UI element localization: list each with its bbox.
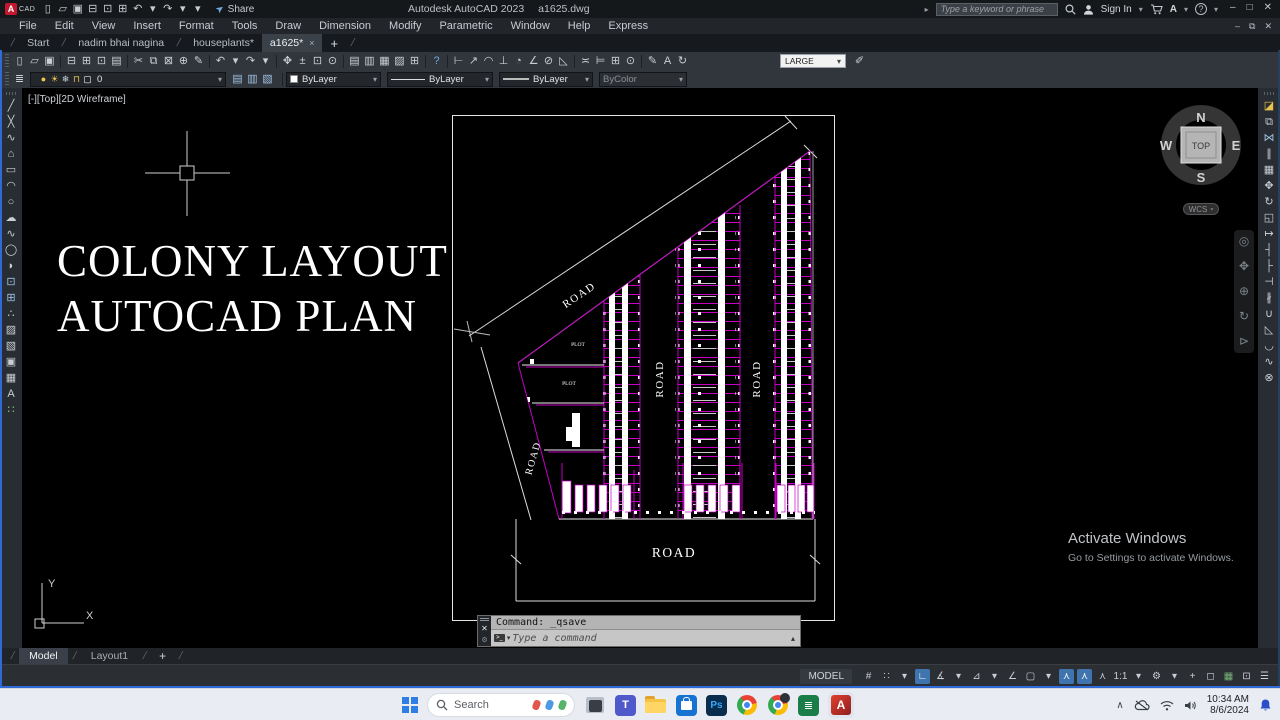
autodesk-app-store-button[interactable]: A bbox=[1170, 4, 1177, 15]
toolbar-separator bbox=[60, 55, 61, 68]
color-swatch bbox=[290, 75, 298, 83]
stretch-icon[interactable]: ↦ bbox=[1262, 227, 1277, 242]
rotate-icon[interactable]: ↻ bbox=[1262, 195, 1277, 210]
polar-tracking-icon[interactable]: ∡ bbox=[933, 669, 948, 684]
break-at-point-icon[interactable]: ⊣ bbox=[1262, 275, 1277, 290]
zoom-realtime-icon[interactable]: ± bbox=[295, 54, 310, 69]
dim-text-edit-icon[interactable]: A bbox=[660, 54, 675, 69]
revision-cloud-icon[interactable]: ☁ bbox=[4, 211, 19, 226]
road-label-v1: ROAD bbox=[654, 360, 666, 397]
ucs-icon: Y X bbox=[26, 575, 96, 637]
command-input[interactable] bbox=[512, 633, 789, 644]
scale-icon[interactable]: ◱ bbox=[1262, 211, 1277, 226]
plot-label-3: PLOT bbox=[566, 429, 580, 435]
share-button[interactable]: ➤ Share bbox=[216, 4, 254, 15]
scale-menu-icon[interactable]: ▾ bbox=[1131, 669, 1146, 684]
autocad-logo[interactable]: A CAD bbox=[5, 3, 35, 15]
iso-menu-icon[interactable]: ▾ bbox=[987, 669, 1002, 684]
chevron-down-icon: ▾ bbox=[1210, 206, 1213, 213]
undo-icon[interactable]: ↶ bbox=[213, 54, 228, 69]
navigation-bar: ◎✥⊕↻⊳ bbox=[1234, 230, 1254, 353]
chevron-down-icon: ▾ bbox=[679, 75, 683, 84]
wcs-label: WCS bbox=[1189, 205, 1208, 214]
menu-help[interactable]: Help bbox=[559, 18, 600, 34]
print-icon[interactable]: ⊡ bbox=[94, 54, 109, 69]
autocad-window: A CAD ▯▱▣⊟⊡⊞↶▾↷▾▾ ➤ Share Autodesk AutoC… bbox=[0, 0, 1280, 720]
road-label-top: ROAD bbox=[561, 280, 599, 311]
dim-continue-icon[interactable]: ≍ bbox=[578, 54, 593, 69]
ucs-x-label: X bbox=[86, 610, 94, 622]
dim-angular-icon[interactable]: ∠ bbox=[526, 54, 541, 69]
cut-clip-icon[interactable]: ✂ bbox=[131, 54, 146, 69]
tolerance-icon[interactable]: ⊞ bbox=[608, 54, 623, 69]
polygon-icon[interactable]: ⌂ bbox=[4, 147, 19, 162]
help-icon[interactable]: ? bbox=[1195, 3, 1207, 15]
layout-separator: / bbox=[66, 650, 82, 662]
redo-icon[interactable]: ↷ bbox=[243, 54, 258, 69]
command-expand-icon[interactable]: ▴ bbox=[791, 634, 795, 643]
tab-separator: / bbox=[344, 37, 360, 49]
undo-menu-icon[interactable]: ▾ bbox=[228, 54, 243, 69]
command-prompt-icon: >_ bbox=[494, 634, 505, 642]
search-highlight-icon bbox=[532, 699, 542, 711]
onedrive-icon[interactable] bbox=[1134, 700, 1150, 711]
layer-tools: ▤▥▧ bbox=[230, 72, 275, 87]
toolbar-grip[interactable] bbox=[5, 72, 9, 86]
table-icon[interactable]: ▦ bbox=[4, 371, 19, 386]
system-tray: ∧ 10:34 AM 8/6/2024 bbox=[1116, 689, 1272, 720]
modify-toolbar: ◪⧉⋈∥▦✥↻◱↦┤├⊣∦∪◺◡∿⊗ bbox=[1258, 88, 1280, 648]
dim-baseline-icon[interactable]: ⊨ bbox=[593, 54, 608, 69]
window-controls: – □ ✕ bbox=[1230, 2, 1272, 13]
document-window-controls: – ⧉ ✕ bbox=[1235, 18, 1272, 34]
print-icon[interactable]: ⊡ bbox=[100, 2, 115, 17]
maximize-button[interactable]: □ bbox=[1247, 2, 1253, 13]
multiline-text-icon[interactable]: A bbox=[4, 387, 19, 402]
search-highlight-icon bbox=[558, 699, 568, 711]
object-snap-icon[interactable]: ▢ bbox=[1023, 669, 1038, 684]
toolbar-separator bbox=[343, 55, 344, 68]
standard-toolbar: ▯▱▣⊟⊞⊡▤✂⧉⊠⊕✎↶▾↷▾✥±⊡⊙▤▥▦▨⊞?⊢↗◠⊥◔∠⊘◺≍⊨⊞⊙✎A… bbox=[0, 52, 1280, 70]
wifi-icon[interactable] bbox=[1160, 700, 1174, 711]
plot-style-dropdown: ByColor ▾ bbox=[599, 72, 687, 87]
document-title: a1625.dwg bbox=[538, 3, 589, 15]
doc-restore-button[interactable]: ⧉ bbox=[1249, 21, 1255, 32]
viewcube-top-face[interactable]: TOP bbox=[1192, 141, 1210, 151]
model-tab[interactable]: Model bbox=[19, 648, 68, 664]
cad-label: CAD bbox=[19, 6, 35, 13]
plot-label-2: PLOT bbox=[562, 381, 576, 387]
annotation-monitor-icon[interactable]: + bbox=[1185, 669, 1200, 684]
ucs-y-label: Y bbox=[48, 578, 56, 590]
new-layout-button[interactable]: + bbox=[151, 649, 174, 663]
help-menu-icon[interactable]: ▾ bbox=[1214, 5, 1218, 14]
toolbar-separator bbox=[127, 55, 128, 68]
new-tab-button[interactable]: + bbox=[322, 36, 346, 51]
current-layer-name: 0 bbox=[97, 74, 214, 85]
plot-label-1: PLOT bbox=[571, 342, 585, 348]
polyline-icon[interactable]: ∿ bbox=[4, 131, 19, 146]
linetype-dropdown[interactable]: ByLayer ▾ bbox=[387, 72, 493, 87]
status-customize-icon[interactable]: ☰ bbox=[1257, 669, 1272, 684]
join-icon[interactable]: ∪ bbox=[1262, 307, 1277, 322]
open-file-icon[interactable]: ▱ bbox=[27, 54, 42, 69]
dim-update-icon[interactable]: ↻ bbox=[675, 54, 690, 69]
qat-customize-icon[interactable]: ▾ bbox=[190, 2, 205, 17]
dim-style-dropdown[interactable]: LARGE ▾ bbox=[780, 54, 846, 68]
trim-icon[interactable]: ┤ bbox=[1262, 243, 1277, 258]
viewcube-south[interactable]: S bbox=[1197, 170, 1206, 185]
plot-icon[interactable]: ⊟ bbox=[85, 2, 100, 17]
microsoft-store-icon[interactable] bbox=[676, 695, 697, 716]
menu-parametric[interactable]: Parametric bbox=[430, 18, 501, 34]
photoshop-icon[interactable]: Ps bbox=[706, 695, 727, 716]
doc-close-button[interactable]: ✕ bbox=[1264, 21, 1272, 32]
menu-view[interactable]: View bbox=[83, 18, 125, 34]
store-menu-icon[interactable]: ▾ bbox=[1184, 5, 1188, 14]
headline-line1: COLONY LAYOUT bbox=[57, 234, 448, 289]
array-icon[interactable]: ▦ bbox=[1262, 163, 1277, 178]
volume-icon[interactable] bbox=[1184, 700, 1197, 711]
gradient-icon[interactable]: ▧ bbox=[4, 339, 19, 354]
standard-toolbar-icons: ▯▱▣⊟⊞⊡▤✂⧉⊠⊕✎↶▾↷▾✥±⊡⊙▤▥▦▨⊞?⊢↗◠⊥◔∠⊘◺≍⊨⊞⊙✎A… bbox=[12, 54, 690, 69]
sign-in-button[interactable]: Sign In bbox=[1101, 4, 1132, 15]
tab-houseplants[interactable]: houseplants* bbox=[185, 34, 262, 52]
wcs-dropdown[interactable]: WCS ▾ bbox=[1183, 203, 1219, 215]
snap-mode-icon[interactable]: ∷ bbox=[879, 669, 894, 684]
object-snap-tracking-icon[interactable]: ∠ bbox=[1005, 669, 1020, 684]
plot-style-value: ByColor bbox=[603, 74, 675, 85]
chrome-profile-icon[interactable] bbox=[767, 694, 789, 716]
layer-isolate-icon[interactable]: ▦ bbox=[377, 54, 392, 69]
search-icon[interactable] bbox=[1065, 4, 1076, 15]
osnap-menu-icon[interactable]: ▾ bbox=[1041, 669, 1056, 684]
viewcube-north[interactable]: N bbox=[1196, 110, 1205, 125]
match-properties-icon[interactable]: ✎ bbox=[191, 54, 206, 69]
ellipse-arc-icon[interactable]: ◗ bbox=[4, 259, 19, 274]
cart-icon[interactable] bbox=[1150, 4, 1163, 15]
command-window: ✕ ⚙ Command: _qsave >_ ▾ ▴ bbox=[477, 615, 801, 647]
redo-menu-icon[interactable]: ▾ bbox=[175, 2, 190, 17]
layer-dropdown[interactable]: ●☀❄⊓▢ 0 ▾ bbox=[30, 72, 226, 87]
redo-menu-icon[interactable]: ▾ bbox=[258, 54, 273, 69]
color-value: ByLayer bbox=[302, 74, 369, 85]
menu-draw[interactable]: Draw bbox=[266, 18, 310, 34]
title-bar: A CAD ▯▱▣⊟⊡⊞↶▾↷▾▾ ➤ Share Autodesk AutoC… bbox=[0, 0, 1280, 18]
explode-icon[interactable]: ⊗ bbox=[1262, 371, 1277, 386]
window-border-left bbox=[0, 50, 2, 688]
share-label: Share bbox=[228, 4, 255, 15]
clean-screen-icon[interactable]: ⊡ bbox=[1239, 669, 1254, 684]
chevron-down-icon: ▾ bbox=[373, 75, 377, 84]
open-file-icon[interactable]: ▱ bbox=[55, 2, 70, 17]
layout-separator: / bbox=[173, 650, 189, 662]
teams-icon[interactable]: T bbox=[615, 695, 636, 716]
search-label: Search bbox=[454, 699, 527, 711]
fillet-icon[interactable]: ◡ bbox=[1262, 339, 1277, 354]
tab-close-icon[interactable]: × bbox=[309, 34, 314, 52]
undo-menu-icon[interactable]: ▾ bbox=[145, 2, 160, 17]
command-main: Command: _qsave >_ ▾ ▴ bbox=[491, 616, 800, 646]
road-label-left: ROAD bbox=[524, 440, 544, 476]
ortho-mode-icon[interactable]: ∟ bbox=[915, 669, 930, 684]
crosshair-cursor bbox=[145, 131, 230, 216]
status-toggles: #∷▾∟∡▾⊿▾∠▢▾⋏⋏⋏1:1▾⚙▾+◻▦⊡☰ bbox=[861, 669, 1272, 684]
command-history-line: Command: _qsave bbox=[491, 616, 800, 630]
pan-hand-icon[interactable]: ✥ bbox=[1237, 259, 1252, 274]
taskbar-search[interactable]: Search bbox=[427, 693, 575, 717]
zoom-previous-icon[interactable]: ⊙ bbox=[325, 54, 340, 69]
hatch-icon[interactable]: ▨ bbox=[4, 323, 19, 338]
minimize-button[interactable]: – bbox=[1230, 2, 1236, 13]
file-tab-bar: / Start / nadim bhai nagina / houseplant… bbox=[0, 34, 1280, 52]
extend-icon[interactable]: ├ bbox=[1262, 259, 1277, 274]
menu-window[interactable]: Window bbox=[502, 18, 559, 34]
title-right-cluster: ▸ Sign In ▾ A ▾ ? ▾ bbox=[925, 2, 1218, 16]
pan-icon[interactable]: ✥ bbox=[280, 54, 295, 69]
colony-plan-drawing: ROAD ROAD ROAD ROAD ROAD PLOT PLOT PLOT bbox=[452, 115, 835, 622]
arc-icon[interactable]: ◠ bbox=[4, 179, 19, 194]
dim-arc-length-icon[interactable]: ◠ bbox=[481, 54, 496, 69]
drawing-viewport[interactable]: ╱╳∿⌂▭◠○☁∿◯◗⊡⊞∴▨▧▣▦A∷ ◪⧉⋈∥▦✥↻◱↦┤├⊣∦∪◺◡∿⊗ … bbox=[0, 88, 1280, 648]
circle-icon[interactable]: ○ bbox=[4, 195, 19, 210]
grid-display-icon[interactable]: # bbox=[861, 669, 876, 684]
copy-base-point-icon[interactable]: ⊕ bbox=[176, 54, 191, 69]
polar-menu-icon[interactable]: ▾ bbox=[951, 669, 966, 684]
windows-taskbar: Search T Ps ≣ A ∧ bbox=[0, 688, 1280, 720]
tab-nadim-bhai-nagina[interactable]: nadim bhai nagina bbox=[70, 34, 172, 52]
dim-linear-icon[interactable]: ⊢ bbox=[451, 54, 466, 69]
layer-properties-manager-icon[interactable]: ≣ bbox=[12, 72, 27, 87]
navigation-wheel-icon[interactable]: ◎ bbox=[1237, 234, 1252, 249]
redo-icon[interactable]: ↷ bbox=[160, 2, 175, 17]
start-button[interactable] bbox=[402, 697, 418, 713]
snap-menu-icon[interactable]: ▾ bbox=[897, 669, 912, 684]
annotation-autoscale-icon[interactable]: ⋏ bbox=[1077, 669, 1092, 684]
mirror-icon[interactable]: ⋈ bbox=[1262, 131, 1277, 146]
save-file-icon[interactable]: ▣ bbox=[42, 54, 57, 69]
viewcube-west[interactable]: W bbox=[1160, 138, 1173, 153]
isometric-drafting-icon[interactable]: ⊿ bbox=[969, 669, 984, 684]
doc-minimize-button[interactable]: – bbox=[1235, 21, 1240, 31]
dim-edit-icon[interactable]: ✎ bbox=[645, 54, 660, 69]
zoom-tool-icon[interactable]: ⊕ bbox=[1237, 284, 1252, 299]
keyword-search-input[interactable] bbox=[936, 3, 1058, 16]
notification-bell-icon[interactable] bbox=[1259, 698, 1272, 712]
layer-lock-icon[interactable]: ⊓ bbox=[71, 72, 82, 87]
menu-insert[interactable]: Insert bbox=[124, 18, 170, 34]
paste-clip-icon[interactable]: ⊠ bbox=[161, 54, 176, 69]
menu-modify[interactable]: Modify bbox=[380, 18, 430, 34]
tab-a1625-label: a1625* bbox=[270, 34, 303, 52]
workspace-switching-icon[interactable]: ⚙ bbox=[1149, 669, 1164, 684]
region-icon[interactable]: ▣ bbox=[4, 355, 19, 370]
activate-windows-subtext: Go to Settings to activate Windows. bbox=[1068, 552, 1234, 564]
layer-combo-icons: ●☀❄⊓▢ bbox=[38, 72, 93, 87]
workspace-menu-icon[interactable]: ▾ bbox=[1167, 669, 1182, 684]
publish-icon[interactable]: ⊞ bbox=[115, 2, 130, 17]
graphics-performance-icon[interactable]: ▦ bbox=[1221, 669, 1236, 684]
lineweight-sample bbox=[503, 78, 529, 80]
layer-color-swatch-icon[interactable]: ▢ bbox=[82, 72, 93, 87]
undo-icon[interactable]: ↶ bbox=[130, 2, 145, 17]
file-explorer-icon[interactable] bbox=[645, 694, 667, 716]
model-space-button[interactable]: MODEL bbox=[800, 669, 852, 684]
new-file-icon[interactable]: ▯ bbox=[12, 54, 27, 69]
tab-a1625-active[interactable]: a1625* × bbox=[262, 34, 323, 52]
object-color-dropdown[interactable]: ByLayer ▾ bbox=[286, 72, 381, 87]
construction-line-icon[interactable]: ╳ bbox=[4, 115, 19, 130]
ellipse-icon[interactable]: ◯ bbox=[4, 243, 19, 258]
quick-calculator-icon[interactable]: ⊞ bbox=[407, 54, 422, 69]
autocad-taskbar-icon[interactable]: A bbox=[828, 692, 854, 718]
layer-freeze-sun-icon[interactable]: ☀ bbox=[49, 72, 60, 87]
dim-style-manager-icon[interactable]: ✐ bbox=[852, 54, 867, 69]
toolbar-separator bbox=[447, 55, 448, 68]
road-label-v2: ROAD bbox=[751, 360, 763, 397]
menu-file[interactable]: File bbox=[10, 18, 46, 34]
window-border-bottom bbox=[0, 686, 1280, 688]
chevron-down-icon: ▾ bbox=[837, 57, 841, 66]
time-label: 10:34 AM bbox=[1207, 694, 1249, 705]
erase-icon[interactable]: ◪ bbox=[1262, 99, 1277, 114]
layer-previous-icon[interactable]: ▥ bbox=[245, 72, 260, 87]
layer-states-icon[interactable]: ▥ bbox=[362, 54, 377, 69]
layout-tab-bar: / Model / Layout1 / + / bbox=[0, 648, 1280, 664]
zoom-window-icon[interactable]: ⊡ bbox=[310, 54, 325, 69]
search-icon bbox=[436, 699, 448, 711]
plot-preview-icon[interactable]: ⊞ bbox=[79, 54, 94, 69]
layers-toolbar: ≣ ●☀❄⊓▢ 0 ▾ ▤▥▧ ByLayer ▾ ByLayer ▾ ByLa… bbox=[0, 70, 1280, 88]
insert-block-icon[interactable]: ⊡ bbox=[4, 275, 19, 290]
recent-commands-icon[interactable]: ▾ bbox=[507, 634, 511, 642]
menu-format[interactable]: Format bbox=[170, 18, 223, 34]
blend-curves-icon[interactable]: ∿ bbox=[1262, 355, 1277, 370]
layer-on-icon[interactable]: ● bbox=[38, 72, 49, 87]
toolbar-separator bbox=[276, 55, 277, 68]
create-block-icon[interactable]: ⊞ bbox=[4, 291, 19, 306]
headline-line2: AUTOCAD PLAN bbox=[57, 289, 448, 344]
layout1-tab[interactable]: Layout1 bbox=[81, 648, 138, 664]
viewcube-east[interactable]: E bbox=[1232, 138, 1241, 153]
isolate-objects-icon[interactable]: ◻ bbox=[1203, 669, 1218, 684]
linetype-value: ByLayer bbox=[429, 74, 481, 85]
activate-windows-text: Activate Windows bbox=[1068, 530, 1186, 547]
menu-dimension[interactable]: Dimension bbox=[310, 18, 380, 34]
publish-icon[interactable]: ▤ bbox=[109, 54, 124, 69]
drawing-title-text: COLONY LAYOUT AUTOCAD PLAN bbox=[57, 234, 448, 344]
task-view-button[interactable] bbox=[584, 694, 606, 716]
line-icon[interactable]: ╱ bbox=[4, 99, 19, 114]
drag-handle-icon[interactable] bbox=[480, 618, 489, 621]
menu-edit[interactable]: Edit bbox=[46, 18, 83, 34]
break-icon[interactable]: ∦ bbox=[1262, 291, 1277, 306]
dim-aligned-icon[interactable]: ↗ bbox=[466, 54, 481, 69]
chrome-icon[interactable] bbox=[736, 694, 758, 716]
app-title: Autodesk AutoCAD 2023 bbox=[408, 3, 524, 15]
copy-icon[interactable]: ⧉ bbox=[1262, 115, 1277, 130]
autocad-a-icon: A bbox=[5, 3, 17, 15]
layer-properties-icon[interactable]: ▤ bbox=[347, 54, 362, 69]
clock[interactable]: 10:34 AM 8/6/2024 bbox=[1207, 694, 1249, 716]
point-icon[interactable]: ∴ bbox=[4, 307, 19, 322]
copy-clip-icon[interactable]: ⧉ bbox=[146, 54, 161, 69]
dim-radius-icon[interactable]: ◔ bbox=[511, 54, 526, 69]
layer-freeze-icon[interactable]: ▨ bbox=[392, 54, 407, 69]
plot-icon[interactable]: ⊟ bbox=[64, 54, 79, 69]
view-cube[interactable]: N S W E TOP bbox=[1156, 101, 1246, 191]
toolbar-separator bbox=[574, 55, 575, 68]
rectangle-icon[interactable]: ▭ bbox=[4, 163, 19, 178]
menu-express[interactable]: Express bbox=[599, 18, 657, 34]
save-file-icon[interactable]: ▣ bbox=[70, 2, 85, 17]
annotation-scale-icon-icon[interactable]: ⋏ bbox=[1095, 669, 1110, 684]
draw-toolbar: ╱╳∿⌂▭◠○☁∿◯◗⊡⊞∴▨▧▣▦A∷ bbox=[0, 88, 22, 648]
tab-start[interactable]: Start bbox=[19, 34, 57, 52]
command-input-row: >_ ▾ ▴ bbox=[491, 630, 800, 646]
lineweight-dropdown[interactable]: ByLayer ▾ bbox=[499, 72, 593, 87]
show-motion-icon[interactable]: ⊳ bbox=[1237, 334, 1252, 349]
date-label: 8/6/2024 bbox=[1207, 705, 1249, 716]
orbit-icon[interactable]: ↻ bbox=[1237, 309, 1252, 324]
search-highlight-icon bbox=[545, 699, 555, 711]
road-label-bottom: ROAD bbox=[652, 545, 696, 560]
window-title: Autodesk AutoCAD 2023 a1625.dwg bbox=[408, 3, 590, 15]
close-button[interactable]: ✕ bbox=[1264, 2, 1272, 13]
move-icon[interactable]: ✥ bbox=[1262, 179, 1277, 194]
dim-diameter-icon[interactable]: ⊘ bbox=[541, 54, 556, 69]
tray-chevron-up-icon[interactable]: ∧ bbox=[1116, 700, 1123, 711]
toolbar-separator bbox=[425, 55, 426, 68]
chevron-down-icon: ▾ bbox=[585, 75, 589, 84]
annotation-scale-icon[interactable]: 1:1 bbox=[1113, 669, 1128, 684]
status-bar: MODEL #∷▾∟∡▾⊿▾∠▢▾⋏⋏⋏1:1▾⚙▾+◻▦⊡☰ bbox=[0, 664, 1280, 688]
menu-tools[interactable]: Tools bbox=[223, 18, 267, 34]
make-layer-current-icon[interactable]: ▤ bbox=[230, 72, 245, 87]
offset-icon[interactable]: ∥ bbox=[1262, 147, 1277, 162]
taskbar-center: Search T Ps ≣ A bbox=[402, 689, 854, 720]
dim-ordinate-icon[interactable]: ⊥ bbox=[496, 54, 511, 69]
chevron-down-icon: ▾ bbox=[485, 75, 489, 84]
share-plane-icon: ➤ bbox=[214, 2, 227, 16]
layer-match-icon[interactable]: ▧ bbox=[260, 72, 275, 87]
lineweight-value: ByLayer bbox=[533, 74, 581, 85]
layer-vp-freeze-icon[interactable]: ❄ bbox=[60, 72, 71, 87]
spline-icon[interactable]: ∿ bbox=[4, 227, 19, 242]
autocad-a-icon: A bbox=[831, 695, 851, 715]
point-style-icon[interactable]: ∷ bbox=[4, 403, 19, 418]
command-close-icon[interactable]: ✕ bbox=[481, 624, 488, 633]
new-file-icon[interactable]: ▯ bbox=[40, 2, 55, 17]
toolbar-grip[interactable] bbox=[5, 54, 9, 68]
spreadsheet-app-icon[interactable]: ≣ bbox=[798, 695, 819, 716]
command-customize-icon[interactable]: ⚙ bbox=[481, 636, 487, 644]
toolbar-separator bbox=[282, 73, 283, 86]
annotation-visibility-icon[interactable]: ⋏ bbox=[1059, 669, 1074, 684]
chevron-down-icon: ▾ bbox=[218, 75, 222, 84]
command-window-rail[interactable]: ✕ ⚙ bbox=[478, 616, 491, 646]
sign-in-menu-icon[interactable]: ▾ bbox=[1139, 5, 1143, 14]
chamfer-icon[interactable]: ◺ bbox=[1262, 323, 1277, 338]
help-icon[interactable]: ? bbox=[429, 54, 444, 69]
search-expander-icon[interactable]: ▸ bbox=[925, 5, 929, 14]
dim-jogged-icon[interactable]: ◺ bbox=[556, 54, 571, 69]
dim-style-value: LARGE bbox=[785, 56, 837, 66]
viewport-controls-label[interactable]: [-][Top][2D Wireframe] bbox=[28, 94, 126, 105]
quick-access-toolbar: ▯▱▣⊟⊡⊞↶▾↷▾▾ bbox=[40, 2, 205, 17]
toolbar-separator bbox=[209, 55, 210, 68]
center-mark-icon[interactable]: ⊙ bbox=[623, 54, 638, 69]
